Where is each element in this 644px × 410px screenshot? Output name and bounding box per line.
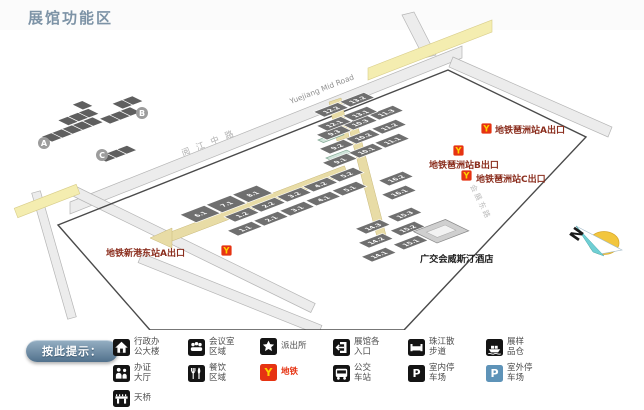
roads (14, 12, 612, 334)
hall-1.1: 1.1 (227, 221, 262, 236)
legend-item-label: 天桥 (134, 390, 151, 407)
legend-hint-button[interactable]: 按此提示： (26, 340, 118, 362)
legend-item-label: 会议室区域 (209, 338, 235, 357)
admin-building-icon (113, 339, 130, 356)
hall-14.2: 14.2 (358, 233, 393, 248)
hall-5.1: 5.1 (332, 181, 367, 196)
legend-item-label: 展馆各入口 (354, 338, 380, 357)
legend-item-sample-warehouse: 展样品仓 (486, 338, 524, 357)
sample-warehouse-icon (486, 339, 503, 356)
svg-text:B: B (139, 109, 145, 118)
legend-item-label: 室内停车场 (429, 364, 455, 383)
screenshot-root: 展馆功能区 Yuejiang Mid Road (0, 0, 644, 410)
legend-item-bus-station: 公交车站 (333, 364, 371, 383)
legend-item-outdoor-parking: P室外停车场 (486, 364, 533, 383)
legend-item-dining: 餐饮区域 (188, 364, 226, 383)
legend-item-indoor-parking: P室内停车场 (408, 364, 455, 383)
metro-exit-label: 地铁新港东站A出口 (106, 247, 185, 259)
legend-item-meeting-room: 会议室区域 (188, 338, 235, 357)
hall-14.1: 14.1 (361, 247, 396, 262)
legend-item-admin-building: 行政办公大楼 (113, 338, 160, 357)
legend-item-police-station: 派出所 (260, 338, 307, 355)
hall-3.1: 3.1 (280, 201, 315, 216)
pazhou-exit-b: Y地铁琶洲站B出口 (429, 145, 499, 171)
legend-item-label: 珠江散步道 (429, 338, 455, 357)
road-right (449, 57, 612, 137)
hotel-label: 广交会威斯汀酒店 (420, 253, 494, 265)
inset-label-c: C (96, 149, 108, 161)
metro-exit-label: 地铁琶洲站C出口 (476, 173, 546, 185)
legend-item-label: 行政办公大楼 (134, 338, 160, 357)
police-station-icon (260, 338, 277, 355)
legend-item-footbridge: 天桥 (113, 390, 151, 407)
hall-4.1: 4.1 (306, 191, 341, 206)
compass-north-label: N (566, 224, 588, 245)
meeting-room-icon (188, 339, 205, 356)
road-left (32, 191, 77, 319)
hall-16.1: 16.1 (381, 185, 416, 200)
pazhou-exit-c: Y地铁琶洲站C出口 (461, 170, 546, 185)
compass: N (566, 224, 622, 256)
inset-label-a: A (38, 137, 50, 149)
entrance-icon (333, 339, 350, 356)
westin-hotel: 广交会威斯汀酒店 (414, 219, 494, 265)
legend-item-riverside-walkway: 珠江散步道 (408, 338, 455, 357)
riverside-walkway-icon (408, 339, 425, 356)
pazhou-exit-a: Y地铁琶洲站A出口 (481, 123, 565, 136)
road-label-huizhan-east: 会展东路 (468, 182, 494, 221)
legend-item-metro: Y地铁 (260, 364, 298, 381)
svg-text:A: A (41, 139, 48, 148)
svg-text:C: C (99, 151, 105, 160)
hall-11.2: 11.2 (372, 119, 407, 134)
legend-item-label: 派出所 (281, 338, 307, 355)
venue-map: Yuejiang Mid Road 阅江中路 会展东路 (0, 0, 644, 334)
legend-item-badge-hall: 办证大厅 (113, 364, 151, 383)
dining-icon (188, 365, 205, 382)
legend-item-label: 公交车站 (354, 364, 371, 383)
inset-label-b: B (136, 107, 148, 119)
metro-icon-glyph: Y (462, 172, 470, 182)
metro-icon-glyph: Y (482, 125, 490, 135)
metro-icon: Y (260, 364, 277, 381)
hall-2.1: 2.1 (253, 211, 288, 226)
legend: 按此提示： 行政办公大楼会议室区域派出所展馆各入口珠江散步道展样品仓办证大厅餐饮… (0, 330, 644, 410)
footbridge-icon (113, 390, 130, 407)
metro-exit-label: 地铁琶洲站B出口 (429, 159, 499, 171)
metro-exit-label: 地铁琶洲站A出口 (495, 124, 565, 136)
legend-item-label: 餐饮区域 (209, 364, 226, 383)
bus-station-icon (333, 365, 350, 382)
metro-icon-glyph: Y (454, 147, 462, 157)
legend-item-entrance: 展馆各入口 (333, 338, 380, 357)
indoor-parking-icon: P (408, 365, 425, 382)
legend-item-label: 地铁 (281, 364, 298, 381)
hall-16.2: 16.2 (378, 171, 413, 186)
hall-11.1: 11.1 (375, 133, 410, 148)
legend-item-label: 室外停车场 (507, 364, 533, 383)
legend-item-label: 展样品仓 (507, 338, 524, 357)
hall-15.3: 15.3 (387, 207, 422, 222)
outdoor-parking-icon: P (486, 365, 503, 382)
legend-item-label: 办证大厅 (134, 364, 151, 383)
metro-icon-glyph: Y (222, 247, 230, 257)
badge-hall-icon (113, 365, 130, 382)
hall-15.1: 15.1 (393, 235, 428, 250)
inset-overview: A B C (18, 96, 155, 162)
